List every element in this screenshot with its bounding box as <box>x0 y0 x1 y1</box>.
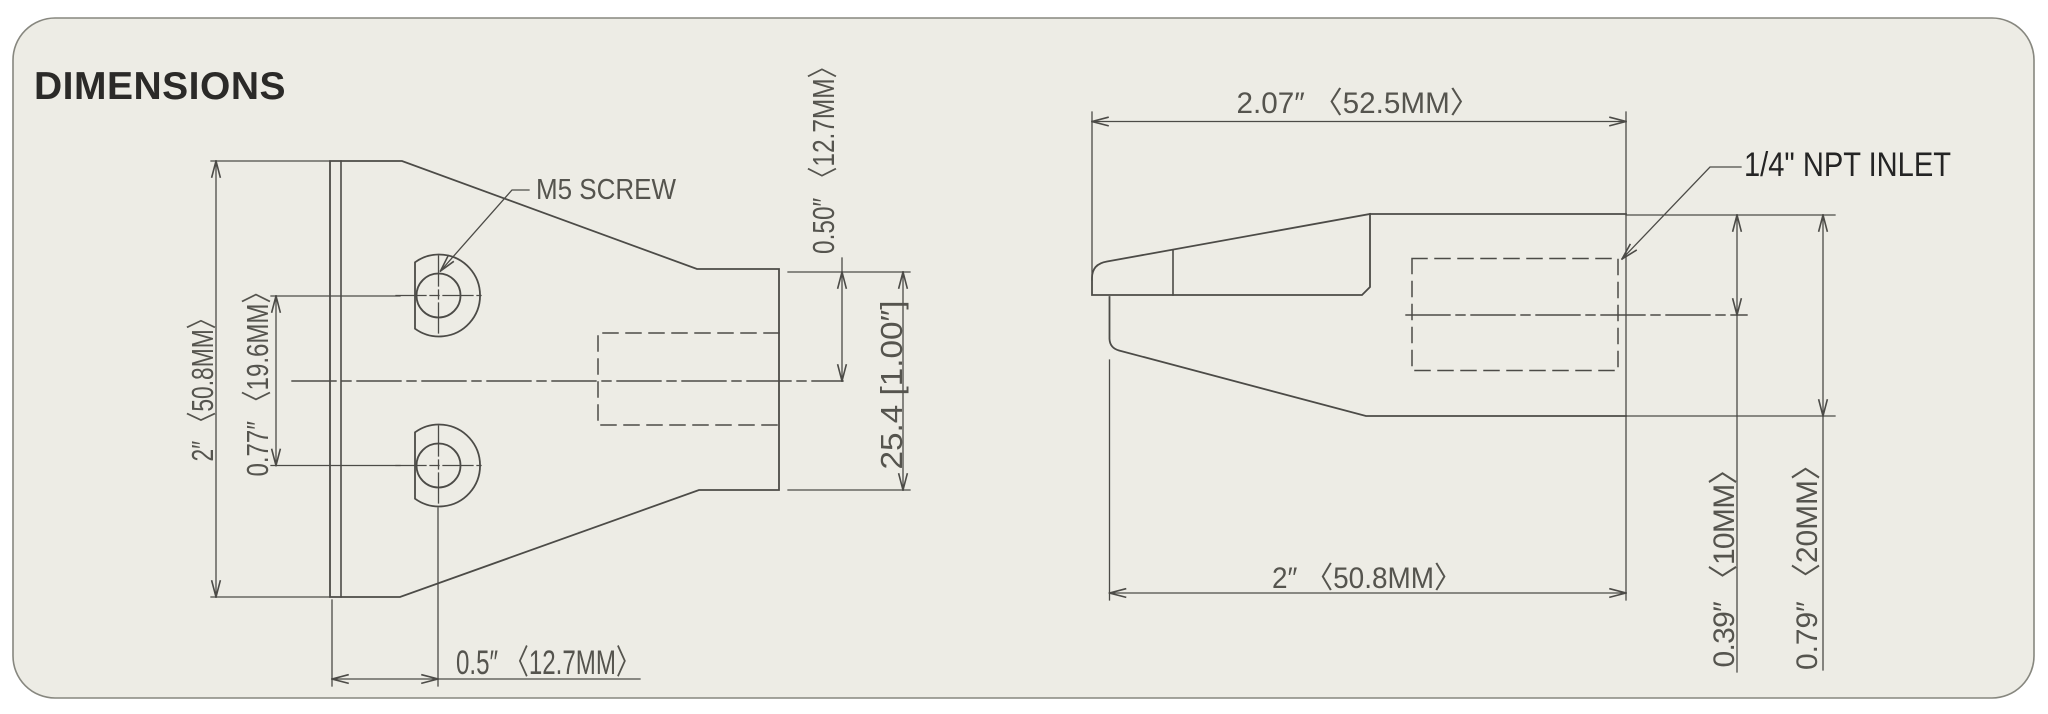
svg-text:2″ 〈50.8MM〉: 2″ 〈50.8MM〉 <box>1272 562 1462 595</box>
svg-text:0.39″ 〈10MM〉: 0.39″ 〈10MM〉 <box>1708 455 1741 668</box>
svg-text:2.07″ 〈52.5MM〉: 2.07″ 〈52.5MM〉 <box>1237 87 1480 120</box>
svg-text:25.4 [1.00″]: 25.4 [1.00″] <box>874 301 909 470</box>
svg-text:0.5″ 〈12.7MM〉: 0.5″ 〈12.7MM〉 <box>456 644 640 682</box>
svg-text:1/4" NPT INLET: 1/4" NPT INLET <box>1744 146 1951 184</box>
svg-text:0.77″ 〈19.6MM〉: 0.77″ 〈19.6MM〉 <box>240 280 275 477</box>
svg-text:0.79″ 〈20MM〉: 0.79″ 〈20MM〉 <box>1791 450 1824 670</box>
svg-text:M5 SCREW: M5 SCREW <box>536 174 677 206</box>
svg-text:0.50″ 〈12.7MM〉: 0.50″ 〈12.7MM〉 <box>806 54 841 254</box>
svg-text:2″ 〈50.8MM〉: 2″ 〈50.8MM〉 <box>185 307 220 462</box>
svg-text:DIMENSIONS: DIMENSIONS <box>34 65 286 108</box>
